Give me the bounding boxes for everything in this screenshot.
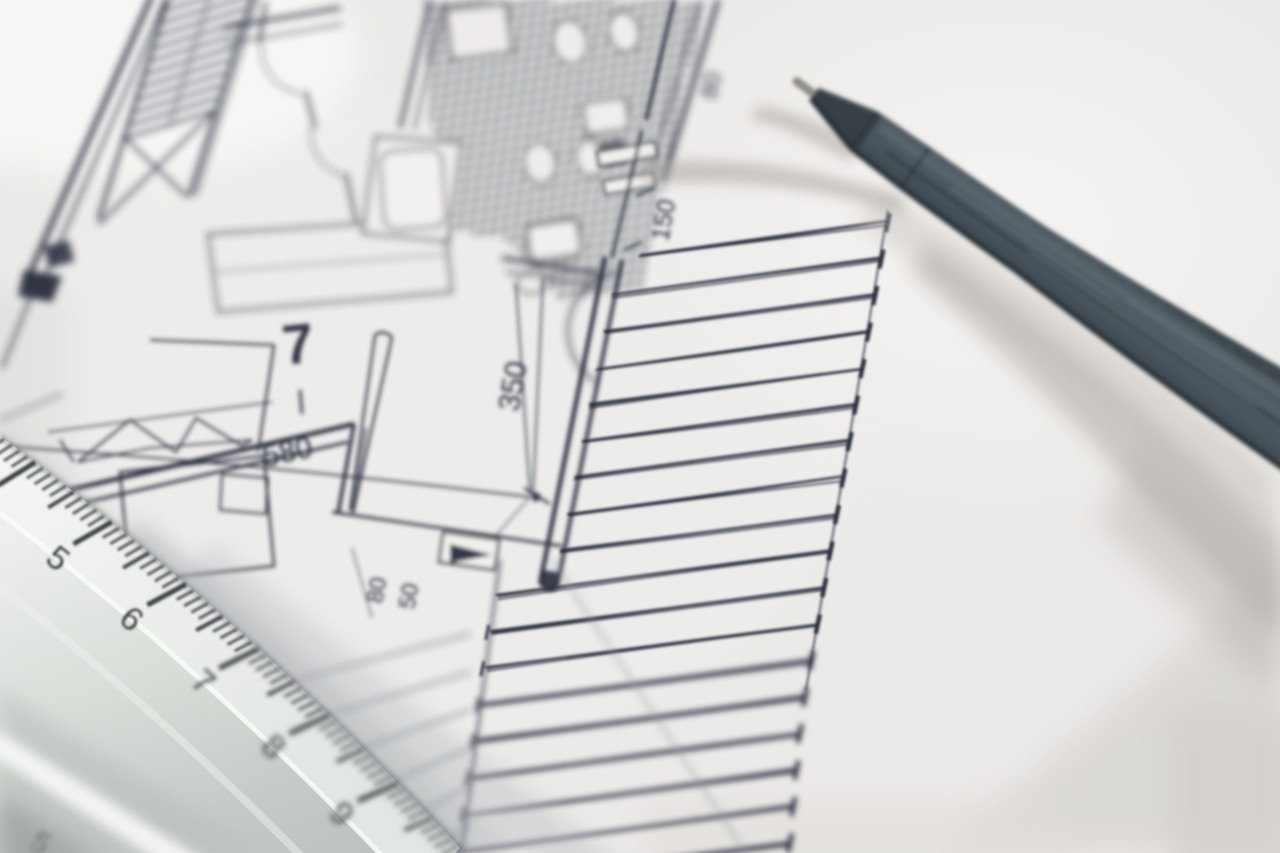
svg-text:80: 80	[695, 70, 727, 102]
svg-text:7: 7	[279, 311, 317, 377]
svg-text:50: 50	[393, 581, 423, 611]
svg-text:80: 80	[361, 575, 391, 605]
